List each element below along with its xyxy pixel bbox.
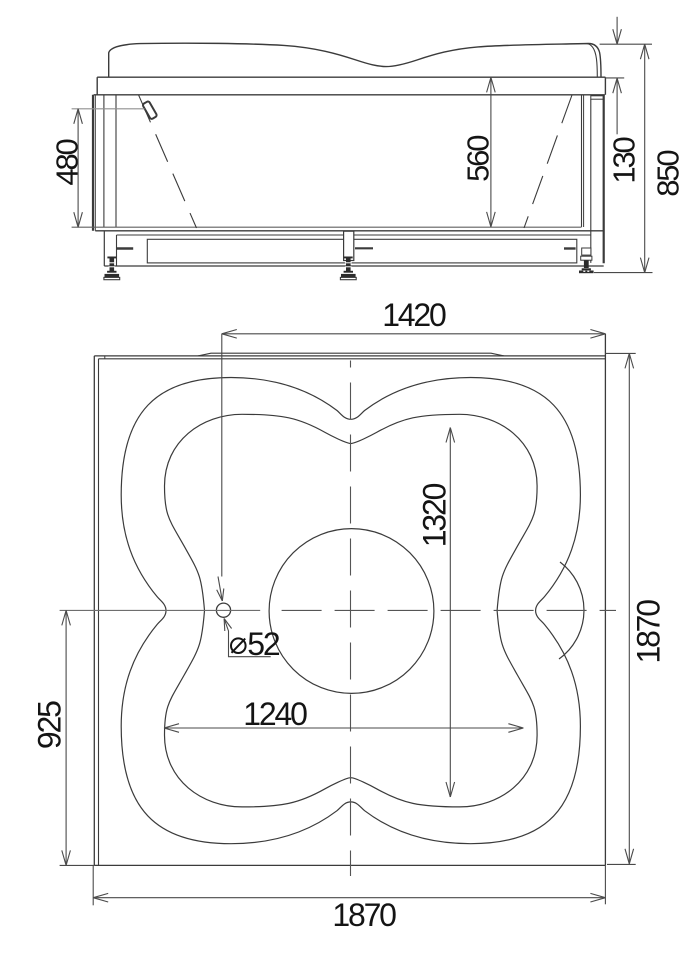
svg-text:1870: 1870 <box>631 600 667 664</box>
svg-text:925: 925 <box>32 701 68 749</box>
svg-text:1240: 1240 <box>243 696 307 732</box>
svg-text:480: 480 <box>50 138 85 185</box>
svg-text:850: 850 <box>651 150 686 197</box>
svg-text:1320: 1320 <box>417 483 453 547</box>
svg-text:560: 560 <box>460 135 495 182</box>
svg-text:130: 130 <box>606 136 641 183</box>
svg-text:52: 52 <box>247 626 280 662</box>
svg-text:1420: 1420 <box>382 297 446 333</box>
svg-text:1870: 1870 <box>332 897 396 933</box>
